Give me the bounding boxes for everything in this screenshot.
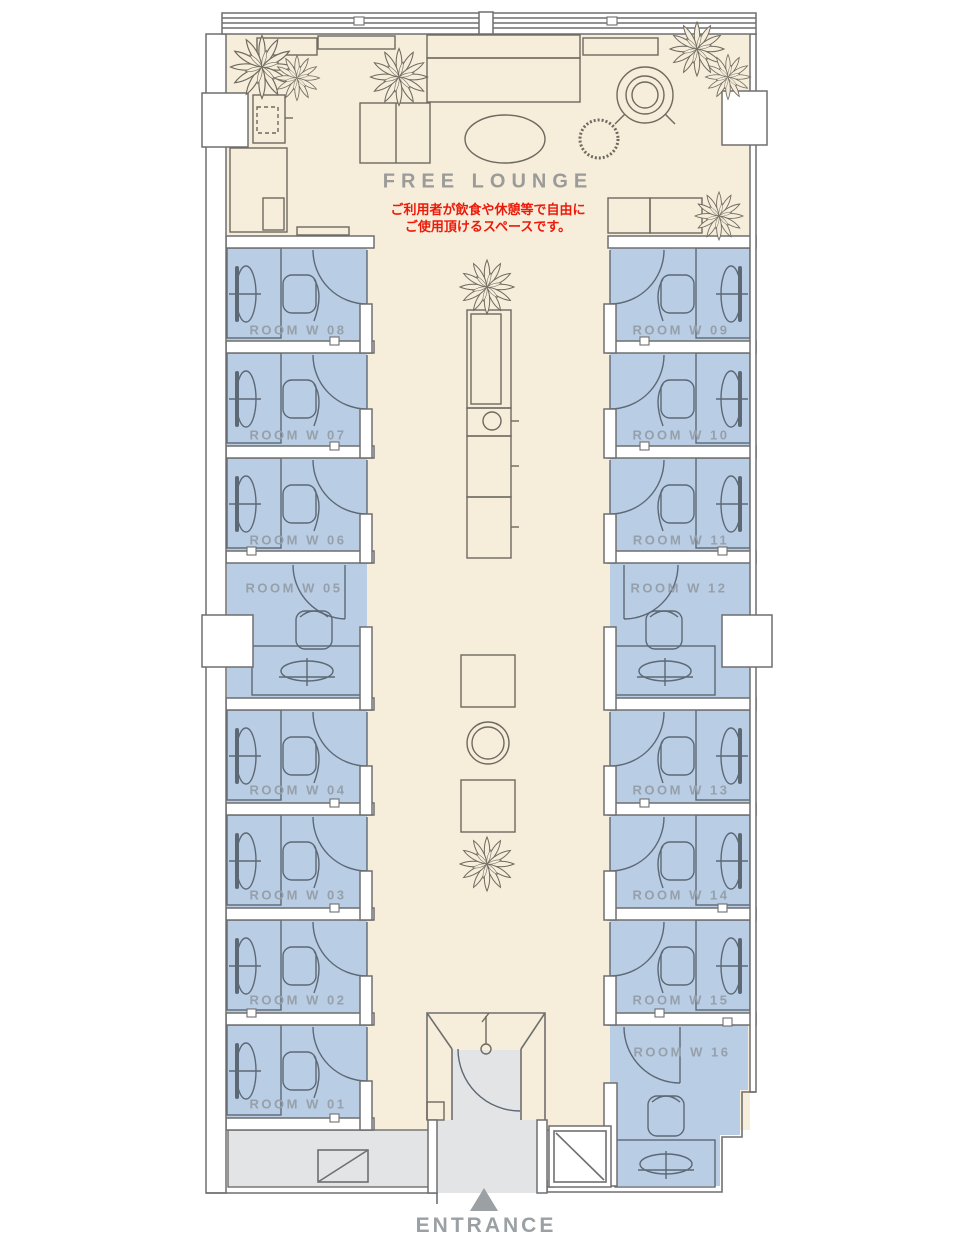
entrance-label: ENTRANCE xyxy=(416,1214,557,1238)
elevator-shaft xyxy=(549,1126,611,1187)
room-label-w09: ROOM W 09 xyxy=(633,323,730,338)
room-label-w06: ROOM W 06 xyxy=(250,533,347,548)
room-label-w10: ROOM W 10 xyxy=(633,428,730,443)
room-label-w04: ROOM W 04 xyxy=(250,783,347,798)
left-bottom-boundary xyxy=(206,1193,437,1204)
lounge-note: ご利用者が飲食や休憩等で自由に ご使用頂けるスペースです。 xyxy=(390,201,585,235)
room-label-w07: ROOM W 07 xyxy=(250,428,347,443)
room-label-w12: ROOM W 12 xyxy=(631,581,728,596)
room-label-w05: ROOM W 05 xyxy=(246,581,343,596)
lounge-note-line2: ご使用頂けるスペースです。 xyxy=(390,218,585,235)
floor-plan-page: FREE LOUNGE ご利用者が飲食や休憩等で自由に ご使用頂けるスペースです… xyxy=(0,0,977,1260)
room-label-w11: ROOM W 11 xyxy=(633,533,729,548)
room-label-w13: ROOM W 13 xyxy=(633,783,730,798)
room-label-w02: ROOM W 02 xyxy=(250,993,347,1008)
room-label-w08: ROOM W 08 xyxy=(250,323,347,338)
room-label-w03: ROOM W 03 xyxy=(250,888,347,903)
free-lounge-label: FREE LOUNGE xyxy=(383,171,593,194)
lounge-note-line1: ご利用者が飲食や休憩等で自由に xyxy=(390,201,585,218)
window-band xyxy=(222,12,756,34)
room-label-w01: ROOM W 01 xyxy=(250,1097,347,1112)
room-label-w16: ROOM W 16 xyxy=(634,1045,731,1060)
entrance-path-upper xyxy=(452,1050,521,1122)
room-label-w15: ROOM W 15 xyxy=(633,993,730,1008)
right-exterior-wall xyxy=(750,34,756,1092)
left-exterior-wall xyxy=(206,34,226,1193)
entrance-path xyxy=(437,1120,537,1193)
room-label-w14: ROOM W 14 xyxy=(633,888,730,903)
